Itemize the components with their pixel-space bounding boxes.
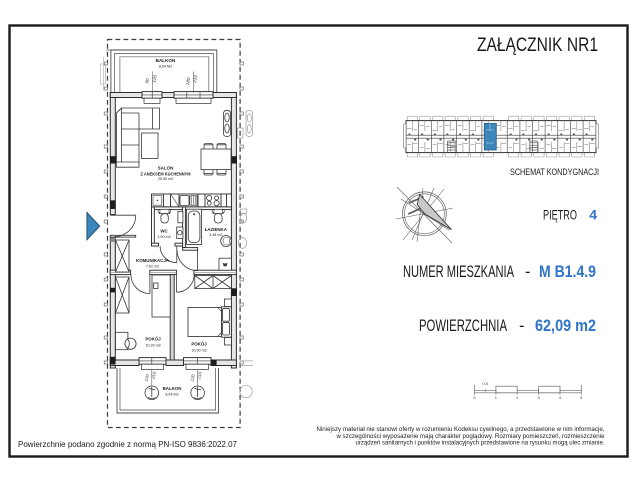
svg-text:-: - bbox=[525, 263, 530, 281]
svg-text:7,62 m2: 7,62 m2 bbox=[146, 265, 159, 269]
svg-text:62,09 m2: 62,09 m2 bbox=[535, 317, 596, 335]
svg-text:10,90 m2: 10,90 m2 bbox=[191, 349, 206, 353]
svg-text:10,29 m2: 10,29 m2 bbox=[145, 344, 160, 348]
svg-text:SALON: SALON bbox=[158, 166, 174, 171]
svg-text:3,48 m2: 3,48 m2 bbox=[209, 233, 222, 237]
svg-text:WC: WC bbox=[160, 229, 168, 234]
svg-text:KOMUNIKACJA: KOMUNIKACJA bbox=[136, 258, 170, 263]
svg-text:urządzeń sanitarnych i punktów: urządzeń sanitarnych i punktów instalacy… bbox=[356, 440, 605, 447]
svg-text:BALKON: BALKON bbox=[163, 386, 182, 391]
svg-text:8,54 M2: 8,54 M2 bbox=[165, 393, 178, 397]
svg-text:SCHEMAT KONDYGNACJI: SCHEMAT KONDYGNACJI bbox=[510, 167, 599, 177]
svg-text:W: W bbox=[223, 262, 227, 267]
svg-text:8,54 M2: 8,54 M2 bbox=[159, 65, 172, 69]
svg-text:-: - bbox=[519, 317, 524, 335]
svg-text:BALKON: BALKON bbox=[156, 58, 176, 63]
svg-text:Powierzchnie podano zgodnie z: Powierzchnie podano zgodnie z normą PN-I… bbox=[18, 440, 237, 449]
svg-text:NUMER MIESZKANIA: NUMER MIESZKANIA bbox=[403, 263, 514, 281]
svg-text:Z ANEKSEM KUCHENNYM: Z ANEKSEM KUCHENNYM bbox=[141, 172, 191, 177]
svg-text:4: 4 bbox=[589, 207, 597, 223]
svg-text:POKÓJ: POKÓJ bbox=[145, 337, 161, 342]
svg-text:25,90 m2: 25,90 m2 bbox=[158, 177, 173, 181]
svg-text:1,90 m2: 1,90 m2 bbox=[157, 235, 170, 239]
svg-text:ŁAZIENKA: ŁAZIENKA bbox=[205, 227, 228, 232]
svg-text:M B1.4.9: M B1.4.9 bbox=[539, 263, 596, 281]
svg-text:POKÓJ: POKÓJ bbox=[191, 342, 207, 347]
svg-text:0,5: 0,5 bbox=[482, 381, 488, 386]
svg-text:PIĘTRO: PIĘTRO bbox=[543, 208, 577, 223]
svg-text:POWIERZCHNIA: POWIERZCHNIA bbox=[419, 317, 507, 335]
svg-text:ZAŁĄCZNIK NR1: ZAŁĄCZNIK NR1 bbox=[477, 35, 598, 56]
